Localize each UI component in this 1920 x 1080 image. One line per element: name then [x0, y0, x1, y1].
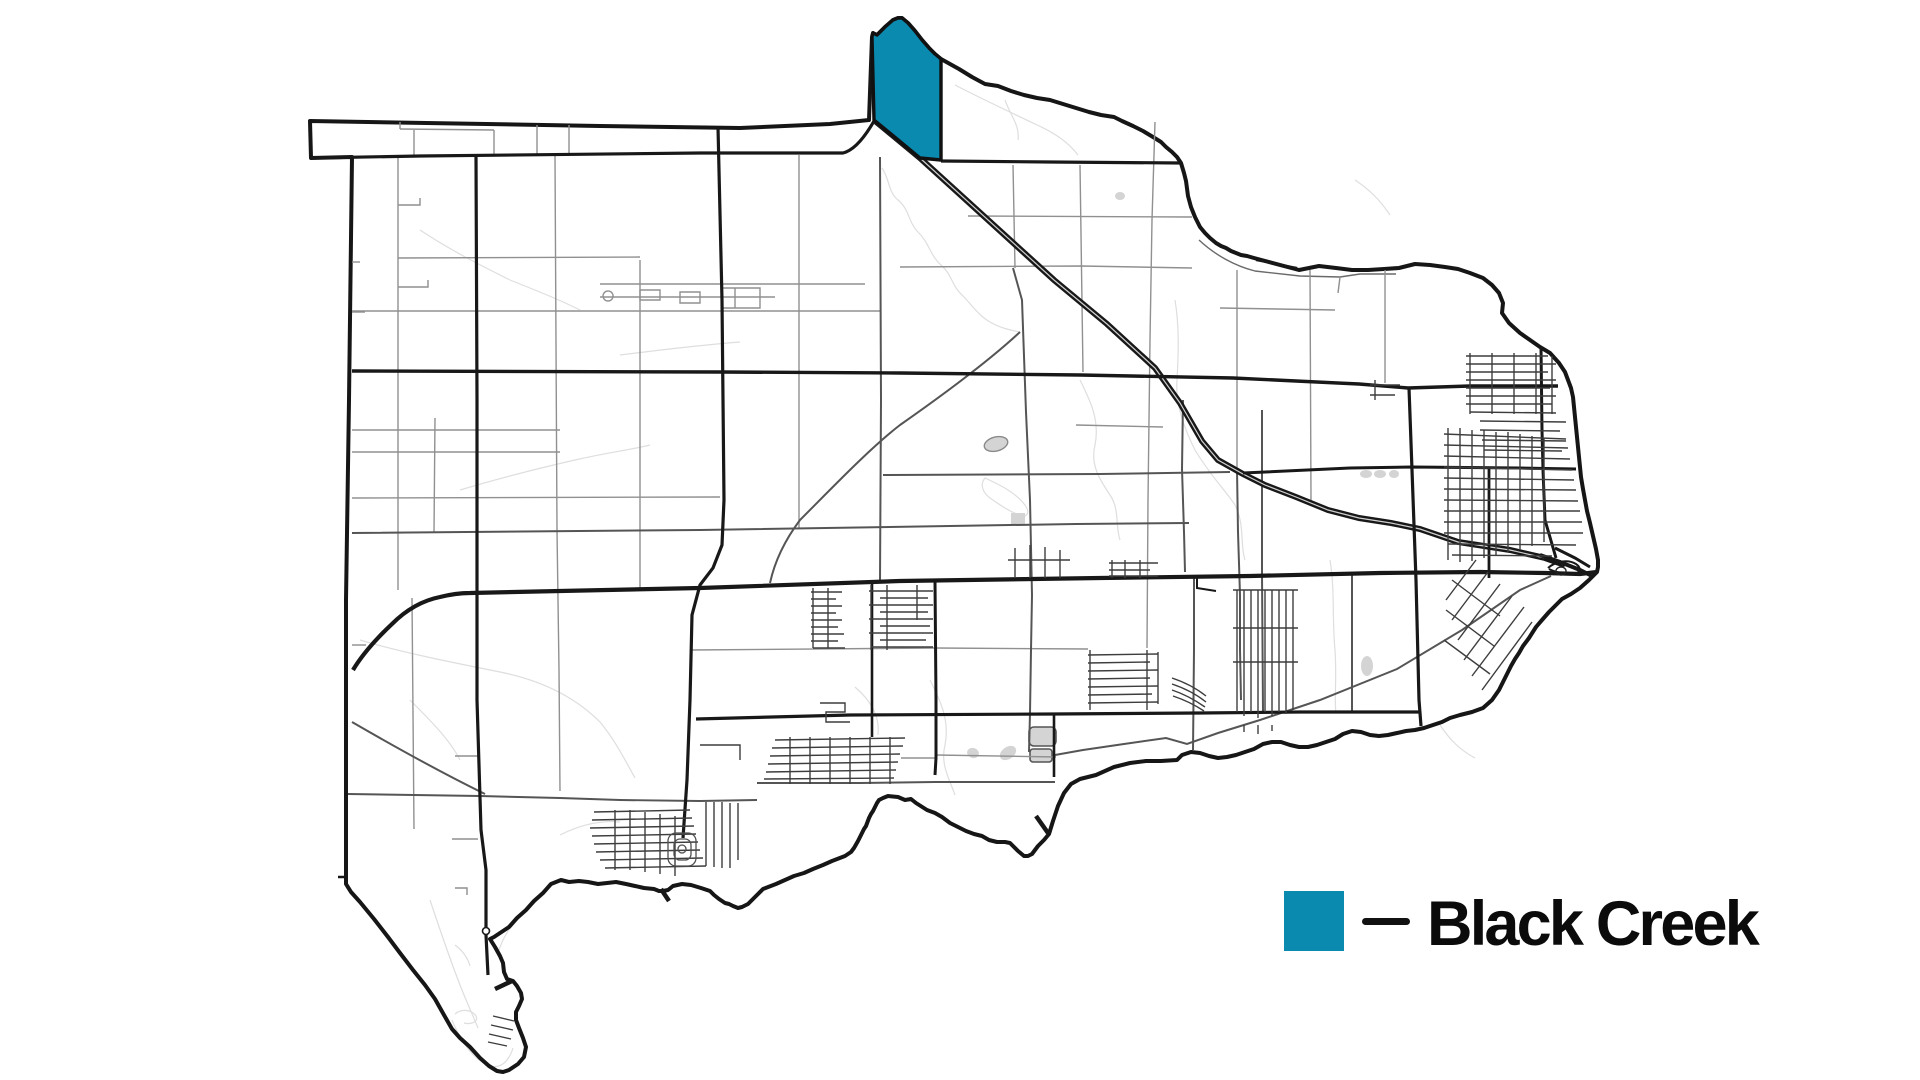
svg-text:Black Creek: Black Creek: [1427, 889, 1761, 959]
